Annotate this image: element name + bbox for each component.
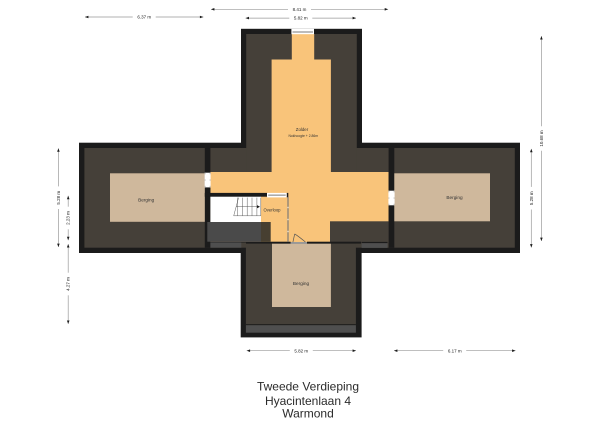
svg-text:8.41 m: 8.41 m xyxy=(293,7,307,12)
svg-text:6.17 m: 6.17 m xyxy=(448,348,462,353)
svg-text:4.27 m: 4.27 m xyxy=(66,277,71,291)
svg-text:5.28 m: 5.28 m xyxy=(529,191,534,205)
svg-text:Zolder: Zolder xyxy=(296,127,309,132)
svg-text:10.68 m: 10.68 m xyxy=(539,130,544,147)
svg-text:5.28 m: 5.28 m xyxy=(56,191,61,205)
svg-text:Hyacintenlaan 4: Hyacintenlaan 4 xyxy=(265,394,351,408)
svg-text:Nokhoogte + 2.86m: Nokhoogte + 2.86m xyxy=(288,134,318,138)
svg-text:Overloop: Overloop xyxy=(264,208,282,213)
svg-text:5.82 m: 5.82 m xyxy=(294,16,308,21)
svg-text:5.82 m: 5.82 m xyxy=(294,348,308,353)
svg-text:Tweede Verdieping: Tweede Verdieping xyxy=(257,379,359,393)
svg-text:2.23 m: 2.23 m xyxy=(66,211,71,225)
svg-text:Warmond: Warmond xyxy=(282,407,334,421)
svg-text:Berging: Berging xyxy=(446,195,463,200)
svg-text:Berging: Berging xyxy=(138,198,155,203)
svg-text:6.37 m: 6.37 m xyxy=(137,15,151,20)
svg-text:Berging: Berging xyxy=(293,281,310,286)
